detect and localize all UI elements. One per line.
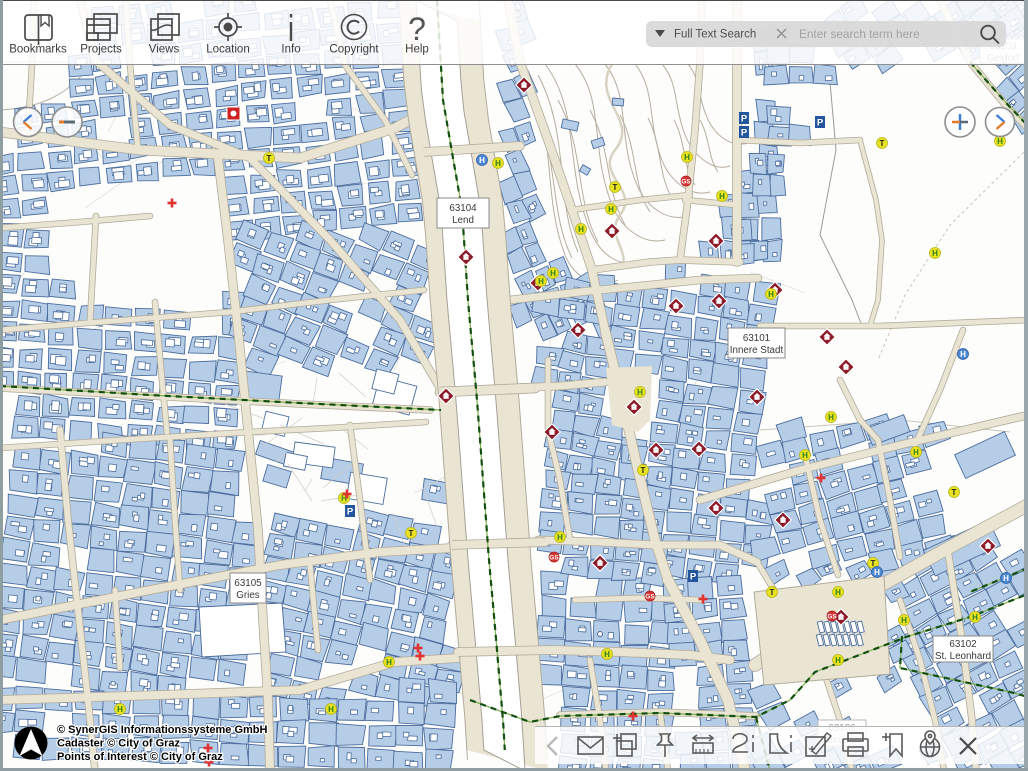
svg-text:GS: GS: [681, 179, 691, 186]
svg-text:Lend: Lend: [452, 215, 474, 226]
svg-text:Gries: Gries: [236, 590, 260, 601]
svg-text:H: H: [328, 705, 334, 714]
svg-text:H: H: [828, 413, 834, 422]
svg-text:© SynerGIS Informationssysteme: © SynerGIS Informationssysteme GmbH: [57, 724, 267, 736]
svg-text:H: H: [637, 388, 643, 397]
svg-text:H: H: [386, 658, 392, 667]
svg-text:H: H: [835, 588, 841, 597]
svg-text:63104: 63104: [449, 203, 477, 214]
svg-text:P: P: [690, 572, 697, 583]
svg-text:H: H: [932, 249, 938, 258]
svg-text:Innere Stadt: Innere Stadt: [730, 345, 784, 356]
svg-text:H: H: [117, 705, 123, 714]
svg-text:H: H: [495, 159, 501, 168]
svg-text:H: H: [604, 650, 610, 659]
svg-text:H: H: [578, 225, 584, 234]
svg-text:T: T: [770, 588, 775, 597]
svg-text:H: H: [835, 656, 841, 665]
svg-text:H: H: [874, 568, 880, 577]
svg-text:H: H: [608, 205, 614, 214]
svg-text:63102: 63102: [949, 639, 976, 650]
svg-text:Points of Interest © City of G: Points of Interest © City of Graz: [57, 751, 223, 763]
svg-text:T: T: [952, 488, 957, 497]
svg-text:H: H: [901, 616, 907, 625]
svg-text:H: H: [557, 533, 563, 542]
svg-text:63105: 63105: [234, 578, 262, 589]
svg-text:H: H: [1003, 574, 1009, 583]
svg-text:63101: 63101: [743, 333, 770, 344]
svg-text:H: H: [972, 613, 978, 622]
svg-text:H: H: [550, 269, 556, 278]
svg-text:H: H: [719, 192, 725, 201]
svg-text:T: T: [641, 466, 646, 475]
svg-text:H: H: [913, 448, 919, 457]
svg-text:T: T: [409, 529, 414, 538]
svg-text:GS: GS: [645, 594, 655, 601]
svg-text:GS: GS: [827, 614, 837, 621]
svg-text:St. Leonhard: St. Leonhard: [935, 651, 991, 662]
svg-text:Cadaster © City of Graz: Cadaster © City of Graz: [57, 738, 181, 750]
svg-text:H: H: [538, 277, 544, 286]
svg-text:GS: GS: [549, 555, 559, 562]
svg-text:P: P: [347, 507, 354, 518]
svg-text:H: H: [768, 290, 774, 299]
svg-text:T: T: [871, 559, 876, 568]
svg-text:T: T: [613, 183, 618, 192]
svg-text:H: H: [960, 350, 966, 359]
svg-text:H: H: [802, 451, 808, 460]
